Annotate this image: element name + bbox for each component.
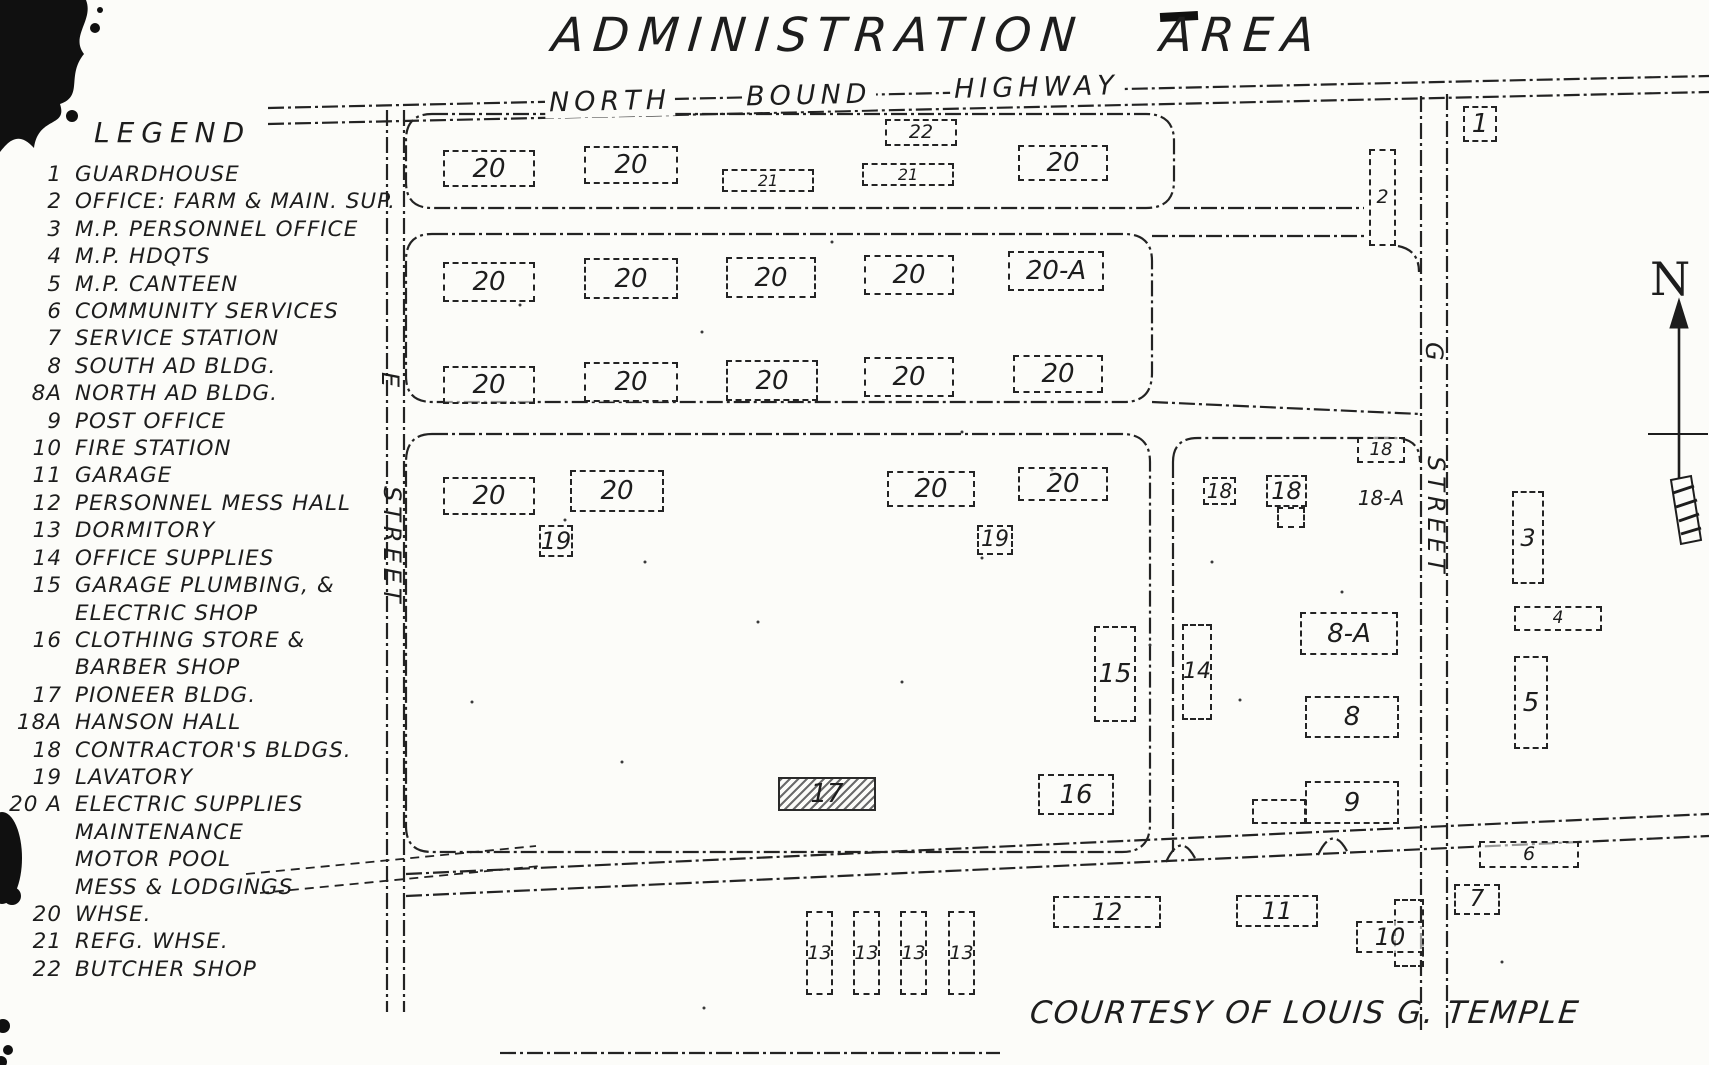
legend-rows: 1GUARDHOUSE2OFFICE: FARM & MAIN. SUP.3M.… — [8, 161, 360, 983]
building-label: 13 — [854, 944, 878, 963]
legend-item: 16CLOTHING STORE &BARBER SHOP — [8, 627, 360, 682]
legend-item: 1GUARDHOUSE — [8, 161, 360, 188]
building-label: 11 — [1262, 899, 1293, 923]
building-label: 20 — [892, 364, 925, 390]
legend-item: 17PIONEER BLDG. — [8, 682, 360, 709]
g-street-letter: G — [1420, 342, 1448, 366]
building-label: 20 — [1046, 471, 1079, 497]
building-8-a: 8-A — [1300, 612, 1398, 655]
legend-item: 6COMMUNITY SERVICES — [8, 298, 360, 325]
legend-item-label: GUARDHOUSE — [75, 161, 240, 188]
building-12: 12 — [1053, 896, 1161, 928]
legend-item-label: GARAGE — [75, 462, 172, 489]
building-label: 20-A — [1026, 258, 1086, 284]
building-5: 5 — [1514, 656, 1548, 749]
building-18: 18 — [1357, 437, 1405, 463]
building-label: 13 — [901, 944, 925, 963]
legend-item-label: CONTRACTOR'S BLDGS. — [75, 737, 352, 764]
legend-item-number: 3 — [8, 216, 75, 243]
building-annex — [1277, 507, 1305, 528]
legend-item-number: 6 — [8, 298, 75, 325]
legend-item-number: 21 — [8, 928, 75, 955]
building-label: 19 — [981, 529, 1009, 551]
legend-item: 20WHSE. — [8, 901, 360, 928]
legend-item: 18CONTRACTOR'S BLDGS. — [8, 737, 360, 764]
page-title: ADMINISTRATION AREA — [550, 8, 1326, 63]
building-20: 20 — [1018, 145, 1108, 181]
building-label: 8 — [1344, 704, 1361, 730]
legend-item: 4M.P. HDQTS — [8, 243, 360, 270]
legend-item-label: OFFICE: FARM & MAIN. SUP. — [75, 188, 396, 215]
legend: LEGEND 1GUARDHOUSE2OFFICE: FARM & MAIN. … — [8, 116, 360, 983]
legend-item: 11GARAGE — [8, 462, 360, 489]
building-label: 20 — [755, 368, 788, 394]
building-20: 20 — [443, 262, 535, 302]
legend-item-label: FIRE STATION — [75, 435, 232, 462]
legend-item-number: 8 — [8, 353, 75, 380]
building-label: 12 — [1092, 900, 1123, 924]
legend-item-label: CLOTHING STORE &BARBER SHOP — [75, 627, 305, 682]
building-20: 20 — [443, 366, 535, 404]
legend-heading: LEGEND — [94, 116, 360, 149]
building-21: 21 — [722, 169, 814, 192]
building-label: 14 — [1183, 661, 1211, 683]
building-6: 6 — [1479, 841, 1579, 868]
building-label: 1 — [1472, 111, 1489, 137]
building-label: 4 — [1553, 610, 1564, 627]
building-label: 20 — [614, 266, 647, 292]
legend-item-number: 2 — [8, 188, 75, 215]
legend-item-label: WHSE. — [75, 901, 152, 928]
building-label: 21 — [758, 173, 778, 189]
legend-item-label: M.P. HDQTS — [75, 243, 210, 270]
legend-item-label: PIONEER BLDG. — [75, 682, 256, 709]
building-20: 20 — [726, 360, 818, 401]
legend-item-label: COMMUNITY SERVICES — [75, 298, 339, 325]
building-label: 6 — [1523, 845, 1535, 864]
building-9: 9 — [1305, 781, 1399, 824]
legend-item: 15GARAGE PLUMBING, &ELECTRIC SHOP — [8, 572, 360, 627]
legend-item: 20 AELECTRIC SUPPLIESMAINTENANCEMOTOR PO… — [8, 791, 360, 901]
building-20: 20 — [1013, 355, 1103, 393]
legend-item-label: M.P. CANTEEN — [75, 271, 238, 298]
building-8: 8 — [1305, 696, 1399, 738]
building-label: 10 — [1375, 925, 1406, 949]
building-label: 22 — [909, 123, 933, 142]
legend-item-number: 19 — [8, 764, 75, 791]
building-18-a: 18-A — [1350, 484, 1412, 512]
building-label: 2 — [1376, 188, 1388, 207]
legend-item-number: 13 — [8, 517, 75, 544]
building-7: 7 — [1454, 884, 1500, 915]
building-20: 20 — [1018, 467, 1108, 501]
legend-item: 8ANORTH AD BLDG. — [8, 380, 360, 407]
building-20: 20 — [584, 362, 678, 402]
building-11: 11 — [1236, 895, 1318, 927]
building-19: 19 — [977, 525, 1013, 555]
legend-item-number: 14 — [8, 545, 75, 572]
legend-item: 10FIRE STATION — [8, 435, 360, 462]
legend-item-label: NORTH AD BLDG. — [75, 380, 278, 407]
building-label: 20 — [892, 262, 925, 288]
building-label: 13 — [949, 944, 973, 963]
building-label: 21 — [898, 167, 918, 183]
building-label: 20 — [472, 372, 505, 398]
building-label: 18 — [1370, 441, 1393, 459]
legend-item-label: SERVICE STATION — [75, 325, 279, 352]
building-10: 10 — [1356, 921, 1424, 953]
legend-item-number: 20 — [8, 901, 75, 928]
building-label: 9 — [1344, 790, 1361, 816]
legend-item-number: 9 — [8, 408, 75, 435]
legend-item: 19LAVATORY — [8, 764, 360, 791]
building-annex — [1252, 799, 1306, 824]
building-label: 19 — [541, 529, 572, 553]
legend-item-label: OFFICE SUPPLIES — [75, 545, 274, 572]
legend-item: 9POST OFFICE — [8, 408, 360, 435]
legend-item-number: 18 — [8, 737, 75, 764]
legend-item: 21REFG. WHSE. — [8, 928, 360, 955]
building-20: 20 — [584, 146, 678, 184]
legend-item-label: DORMITORY — [75, 517, 215, 544]
legend-item: 2OFFICE: FARM & MAIN. SUP. — [8, 188, 360, 215]
legend-item-label: ELECTRIC SUPPLIESMAINTENANCEMOTOR POOLME… — [75, 791, 303, 901]
building-label: 13 — [807, 944, 831, 963]
g-street-name: STREET — [1422, 456, 1450, 578]
building-2: 2 — [1369, 149, 1396, 246]
legend-item-number: 10 — [8, 435, 75, 462]
building-label: 20 — [472, 269, 505, 295]
building-label: 20 — [600, 478, 633, 504]
legend-item-number: 11 — [8, 462, 75, 489]
building-13: 13 — [900, 911, 927, 995]
building-label: 20 — [614, 152, 647, 178]
building-20: 20 — [443, 477, 535, 515]
credit-line: COURTESY OF LOUIS G. TEMPLE — [1028, 995, 1582, 1031]
legend-item-label: POST OFFICE — [75, 408, 226, 435]
building-3: 3 — [1512, 491, 1544, 584]
building-20-a: 20-A — [1008, 251, 1104, 291]
building-15: 15 — [1094, 626, 1136, 722]
building-label: 3 — [1520, 526, 1535, 550]
building-1: 1 — [1463, 106, 1497, 142]
building-20: 20 — [443, 150, 535, 187]
legend-item: 5M.P. CANTEEN — [8, 271, 360, 298]
building-label: 15 — [1098, 661, 1131, 687]
building-13: 13 — [948, 911, 975, 995]
building-label: 20 — [614, 369, 647, 395]
legend-item: 18AHANSON HALL — [8, 709, 360, 736]
building-20: 20 — [570, 470, 664, 512]
legend-item-number: 5 — [8, 271, 75, 298]
building-20: 20 — [864, 357, 954, 397]
building-4: 4 — [1514, 606, 1602, 631]
legend-item-number: 15 — [8, 572, 75, 627]
legend-item-label: BUTCHER SHOP — [75, 956, 257, 983]
legend-item-number: 7 — [8, 325, 75, 352]
legend-item: 8SOUTH AD BLDG. — [8, 353, 360, 380]
highway-label-bound: BOUND — [742, 78, 876, 112]
highway-label-north: NORTH — [545, 85, 676, 119]
legend-item-label: PERSONNEL MESS HALL — [75, 490, 351, 517]
building-14: 14 — [1182, 624, 1212, 720]
building-label: 20 — [754, 265, 787, 291]
building-label: 18-A — [1358, 488, 1404, 508]
building-22: 22 — [885, 119, 957, 146]
road-segment — [1398, 246, 1419, 272]
building-label: 20 — [1041, 361, 1074, 387]
legend-item: 13DORMITORY — [8, 517, 360, 544]
building-16: 16 — [1038, 774, 1114, 815]
building-label: 20 — [1046, 150, 1079, 176]
building-20: 20 — [887, 471, 975, 507]
building-17: 17 — [778, 777, 876, 811]
building-19: 19 — [539, 525, 573, 557]
legend-item-number: 22 — [8, 956, 75, 983]
legend-item: 12PERSONNEL MESS HALL — [8, 490, 360, 517]
building-label: 8-A — [1327, 621, 1371, 647]
building-label: 5 — [1523, 690, 1540, 716]
legend-item-number: 17 — [8, 682, 75, 709]
legend-item-label: LAVATORY — [75, 764, 193, 791]
building-13: 13 — [853, 911, 880, 995]
legend-item: 7SERVICE STATION — [8, 325, 360, 352]
road-segment — [1152, 402, 1420, 414]
legend-item-label: GARAGE PLUMBING, &ELECTRIC SHOP — [75, 572, 335, 627]
building-label: 18 — [1271, 479, 1302, 503]
building-label: 20 — [914, 476, 947, 502]
legend-item: 14OFFICE SUPPLIES — [8, 545, 360, 572]
building-label: 18 — [1207, 481, 1232, 501]
legend-item-number: 4 — [8, 243, 75, 270]
building-label: 20 — [472, 156, 505, 182]
legend-item-number: 16 — [8, 627, 75, 682]
north-label: N — [1650, 252, 1690, 306]
legend-item-label: REFG. WHSE. — [75, 928, 229, 955]
building-20: 20 — [864, 255, 954, 295]
building-label: 17 — [810, 781, 843, 807]
building-21: 21 — [862, 163, 954, 186]
e-street-name: STREET — [378, 486, 406, 608]
north-arrow — [1648, 299, 1708, 544]
e-street-letter: E — [376, 372, 404, 392]
legend-item-number: 18A — [8, 709, 75, 736]
building-label: 7 — [1470, 888, 1485, 911]
legend-item-number: 1 — [8, 161, 75, 188]
highway-label-highway: HIGHWAY — [950, 70, 1123, 105]
building-label: 16 — [1059, 782, 1092, 808]
site-plan: ADMINISTRATION AREA NORTH BOUND HIGHWAY … — [0, 0, 1709, 1065]
legend-item: 22BUTCHER SHOP — [8, 956, 360, 983]
legend-item-label: HANSON HALL — [75, 709, 241, 736]
building-13: 13 — [806, 911, 833, 995]
building-label: 20 — [472, 483, 505, 509]
legend-item-number: 20 A — [8, 791, 75, 901]
legend-item-number: 12 — [8, 490, 75, 517]
building-20: 20 — [726, 257, 816, 298]
building-20: 20 — [584, 258, 678, 299]
legend-item-label: SOUTH AD BLDG. — [75, 353, 276, 380]
legend-item-label: M.P. PERSONNEL OFFICE — [75, 216, 358, 243]
legend-item-number: 8A — [8, 380, 75, 407]
building-18: 18 — [1266, 475, 1307, 507]
legend-item: 3M.P. PERSONNEL OFFICE — [8, 216, 360, 243]
building-18: 18 — [1203, 477, 1236, 505]
